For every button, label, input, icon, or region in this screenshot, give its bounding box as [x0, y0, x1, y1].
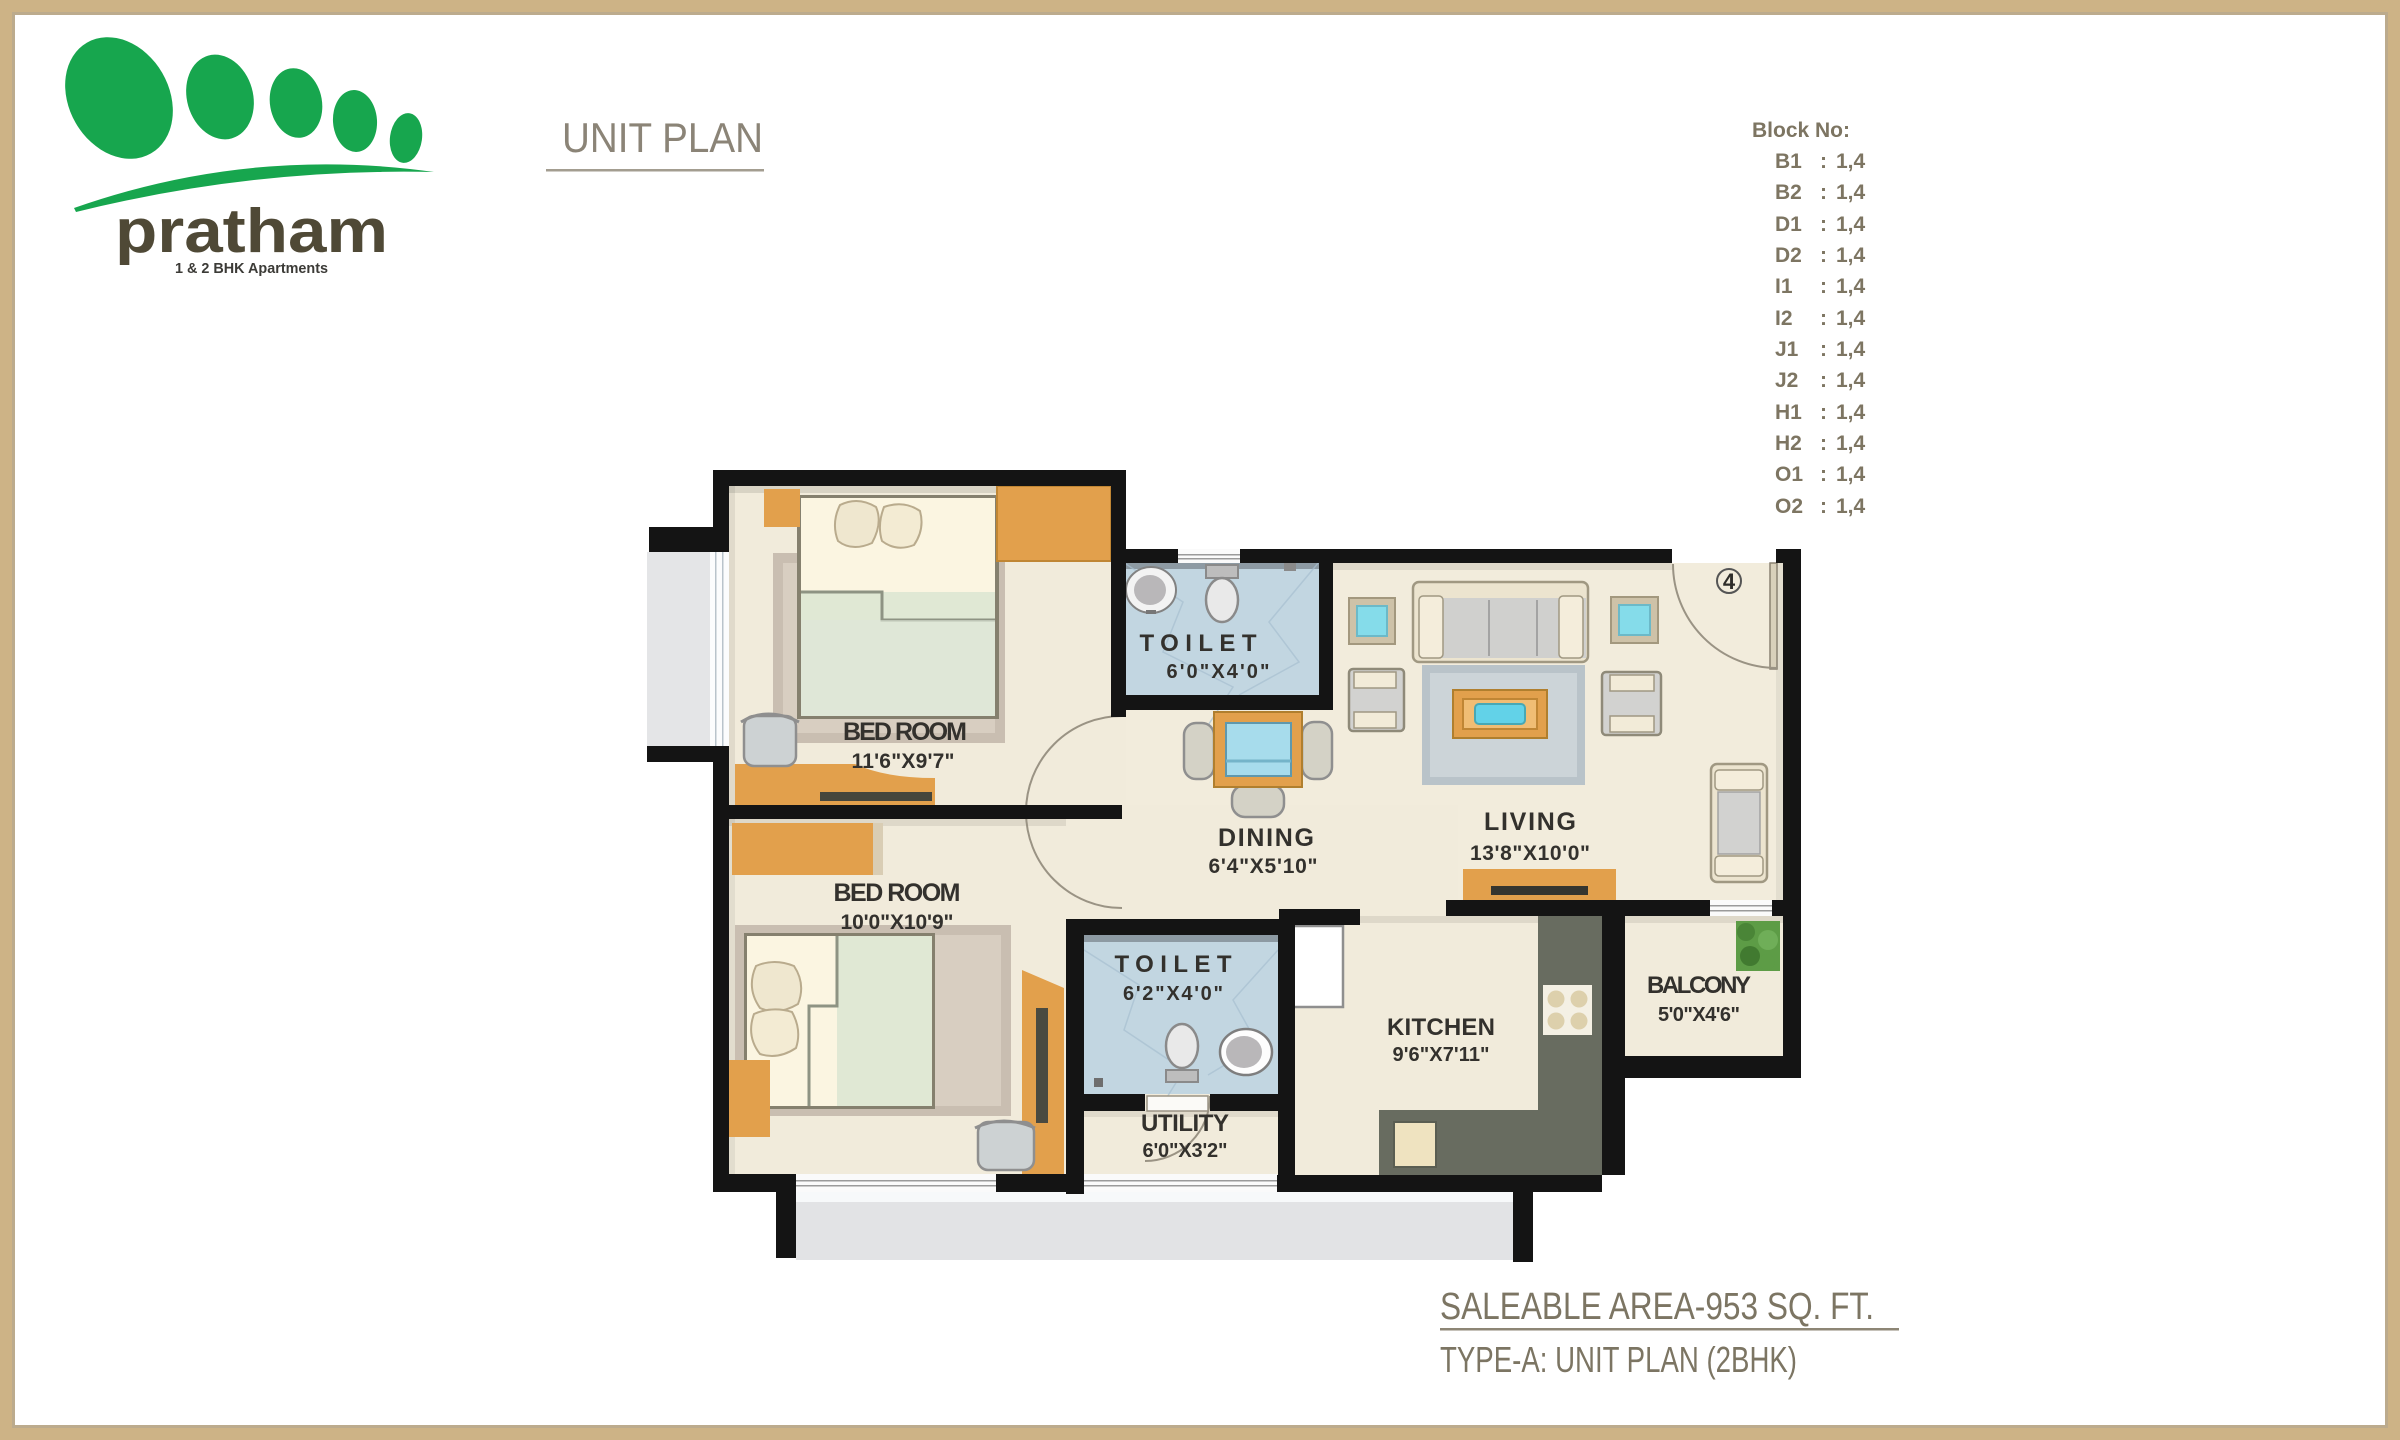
- svg-text:Block No:: Block No:: [1752, 119, 1850, 142]
- svg-text:D2: D2: [1775, 244, 1802, 267]
- svg-text::: :: [1820, 495, 1827, 518]
- svg-text:UNIT PLAN: UNIT PLAN: [562, 114, 763, 161]
- svg-text:SALEABLE AREA-953 SQ. FT.: SALEABLE AREA-953 SQ. FT.: [1440, 1286, 1874, 1328]
- svg-text::: :: [1820, 307, 1827, 330]
- svg-text:J1: J1: [1775, 338, 1799, 361]
- svg-text::: :: [1820, 369, 1827, 392]
- svg-text::: :: [1820, 181, 1827, 204]
- svg-text:BED ROOM: BED ROOM: [843, 718, 967, 746]
- svg-text:H2: H2: [1775, 432, 1802, 455]
- svg-text:1,4: 1,4: [1836, 181, 1866, 204]
- svg-text:1,4: 1,4: [1836, 213, 1866, 236]
- svg-text:KITCHEN: KITCHEN: [1387, 1014, 1495, 1041]
- svg-text:6'2"X4'0": 6'2"X4'0": [1123, 983, 1223, 1005]
- svg-text:13'8"X10'0": 13'8"X10'0": [1470, 842, 1590, 865]
- svg-text:BED ROOM: BED ROOM: [834, 879, 961, 907]
- svg-text::: :: [1820, 244, 1827, 267]
- svg-text:I1: I1: [1775, 275, 1793, 298]
- svg-text:D1: D1: [1775, 213, 1802, 236]
- svg-text:BALCONY: BALCONY: [1647, 972, 1751, 999]
- svg-text:6'4"X5'10": 6'4"X5'10": [1209, 855, 1318, 878]
- svg-text:J2: J2: [1775, 369, 1798, 392]
- svg-text:LIVING: LIVING: [1484, 808, 1576, 836]
- svg-text:1,4: 1,4: [1836, 307, 1866, 330]
- svg-text:TYPE-A: UNIT PLAN (2BHK): TYPE-A: UNIT PLAN (2BHK): [1440, 1339, 1797, 1380]
- svg-text:1,4: 1,4: [1836, 432, 1866, 455]
- svg-text::: :: [1820, 432, 1827, 455]
- svg-text:pratham: pratham: [115, 197, 388, 266]
- svg-text::: :: [1820, 338, 1827, 361]
- svg-text:I2: I2: [1775, 307, 1793, 330]
- svg-text:4: 4: [1723, 569, 1736, 594]
- svg-text:1,4: 1,4: [1836, 369, 1866, 392]
- svg-text:O2: O2: [1775, 495, 1803, 518]
- svg-text:B1: B1: [1775, 150, 1802, 173]
- svg-text:1,4: 1,4: [1836, 495, 1866, 518]
- svg-text:9'6"X7'11": 9'6"X7'11": [1393, 1044, 1490, 1066]
- svg-text:H1: H1: [1775, 401, 1802, 424]
- svg-text:1,4: 1,4: [1836, 150, 1866, 173]
- svg-text:1,4: 1,4: [1836, 463, 1866, 486]
- svg-text::: :: [1820, 150, 1827, 173]
- svg-text:DINING: DINING: [1218, 824, 1314, 852]
- svg-text:1,4: 1,4: [1836, 338, 1866, 361]
- svg-text:5'0"X4'6": 5'0"X4'6": [1658, 1004, 1740, 1026]
- svg-text:11'6"X9'7": 11'6"X9'7": [852, 750, 955, 773]
- svg-text:UTILITY: UTILITY: [1141, 1110, 1229, 1137]
- svg-text:1,4: 1,4: [1836, 275, 1866, 298]
- svg-text:6'0"X4'0": 6'0"X4'0": [1167, 661, 1270, 683]
- svg-text:B2: B2: [1775, 181, 1802, 204]
- svg-text:O1: O1: [1775, 463, 1803, 486]
- svg-text:1,4: 1,4: [1836, 401, 1866, 424]
- svg-text:1 & 2 BHK Apartments: 1 & 2 BHK Apartments: [175, 260, 328, 277]
- svg-text::: :: [1820, 401, 1827, 424]
- svg-text:6'0"X3'2": 6'0"X3'2": [1143, 1140, 1228, 1162]
- svg-text:10'0"X10'9": 10'0"X10'9": [841, 911, 954, 934]
- svg-text::: :: [1820, 275, 1827, 298]
- svg-text::: :: [1820, 213, 1827, 236]
- svg-text:1,4: 1,4: [1836, 244, 1866, 267]
- svg-text::: :: [1820, 463, 1827, 486]
